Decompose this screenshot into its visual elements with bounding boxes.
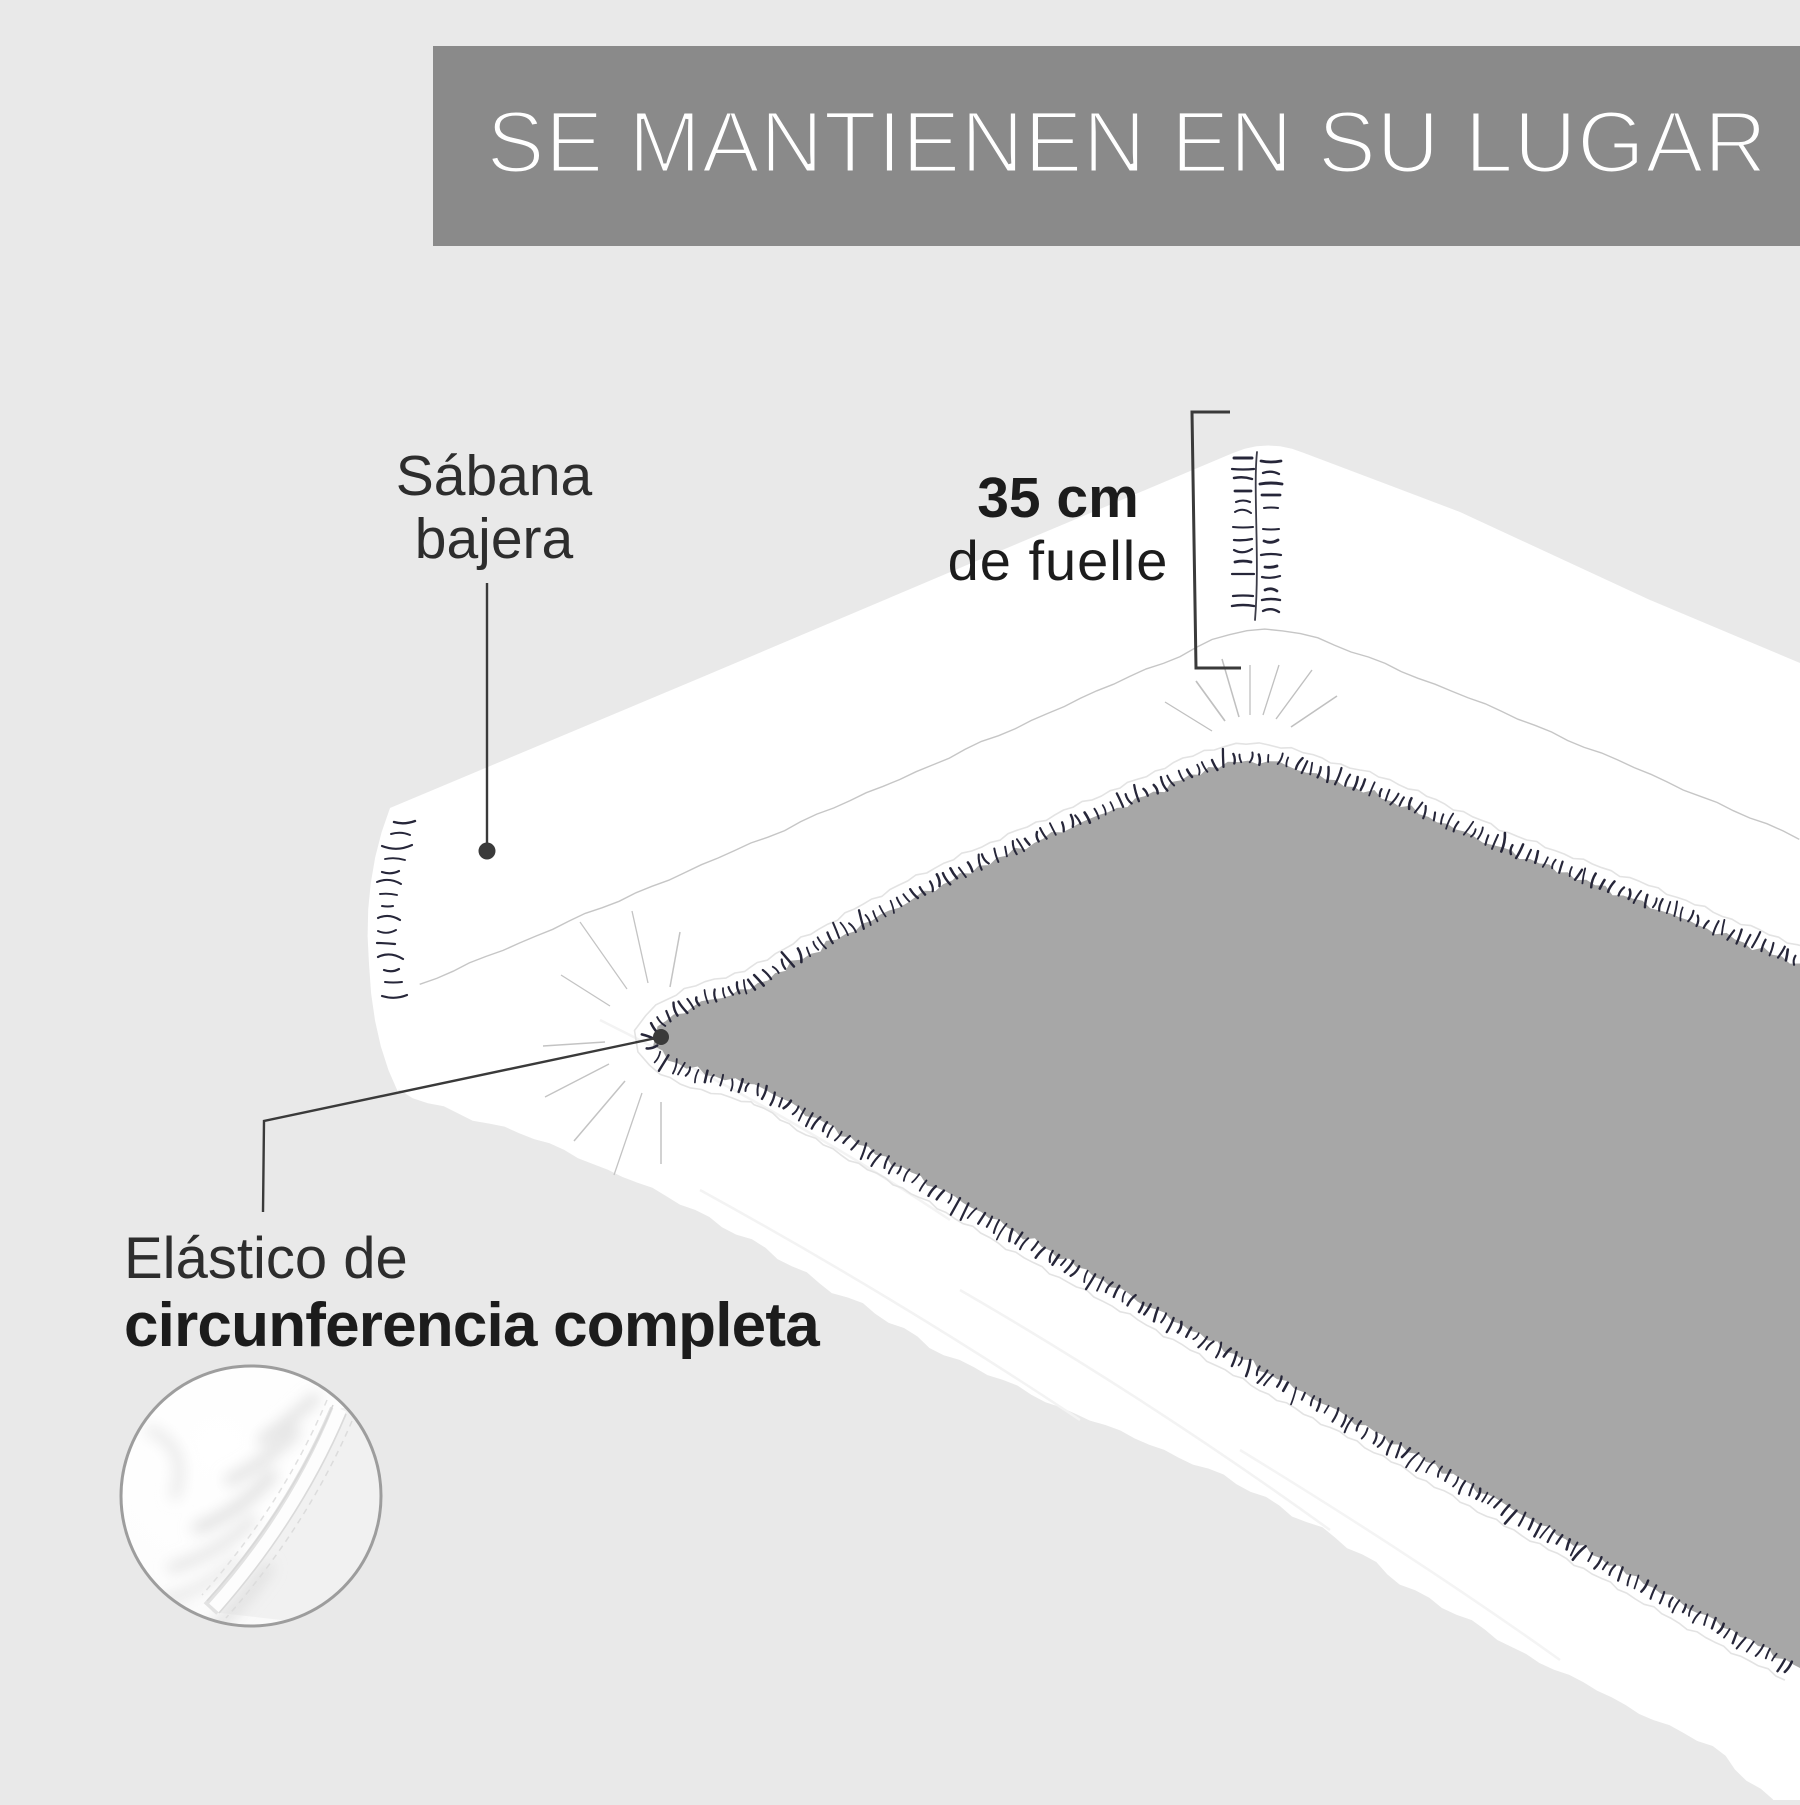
- svg-text:Sábana: Sábana: [396, 444, 593, 508]
- svg-text:Elástico de: Elástico de: [124, 1226, 408, 1291]
- svg-text:circunferencia completa: circunferencia completa: [124, 1291, 820, 1360]
- svg-text:SE MANTIENEN EN SU LUGAR: SE MANTIENEN EN SU LUGAR: [487, 94, 1768, 191]
- svg-text:35 cm: 35 cm: [977, 466, 1139, 530]
- svg-text:de fuelle: de fuelle: [948, 529, 1169, 592]
- svg-text:bajera: bajera: [415, 507, 574, 571]
